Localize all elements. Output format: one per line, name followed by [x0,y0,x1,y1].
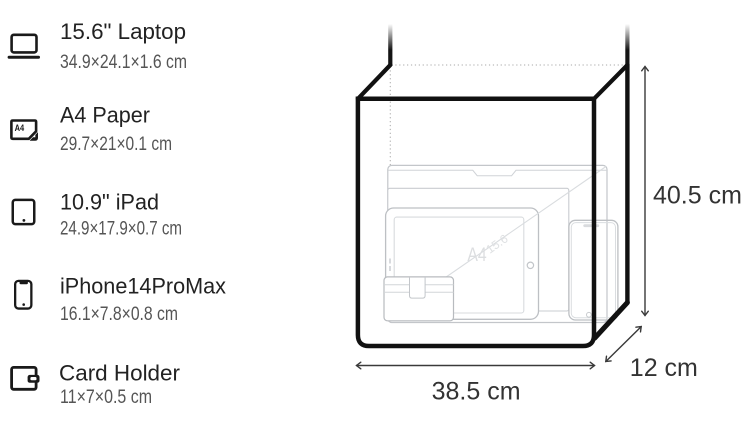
svg-text:A4: A4 [467,245,487,266]
svg-text:34.9×24.1×1.6 cm: 34.9×24.1×1.6 cm [60,52,187,73]
svg-text:iPhone14ProMax: iPhone14ProMax [60,274,226,299]
svg-text:29.7×21×0.1 cm: 29.7×21×0.1 cm [60,134,172,155]
svg-text:24.9×17.9×0.7 cm: 24.9×17.9×0.7 cm [60,219,182,240]
svg-text:15.6" Laptop: 15.6" Laptop [60,19,186,44]
svg-text:16.1×7.8×0.8 cm: 16.1×7.8×0.8 cm [60,304,178,325]
svg-text:A4 Paper: A4 Paper [60,102,150,127]
svg-text:10.9" iPad: 10.9" iPad [60,190,159,215]
svg-text:A4: A4 [15,123,25,134]
svg-text:38.5 cm: 38.5 cm [432,378,521,406]
svg-text:11×7×0.5 cm: 11×7×0.5 cm [60,387,152,408]
svg-text:12 cm: 12 cm [630,354,698,382]
svg-text:40.5 cm: 40.5 cm [653,181,742,209]
svg-text:Card Holder: Card Holder [59,361,180,386]
